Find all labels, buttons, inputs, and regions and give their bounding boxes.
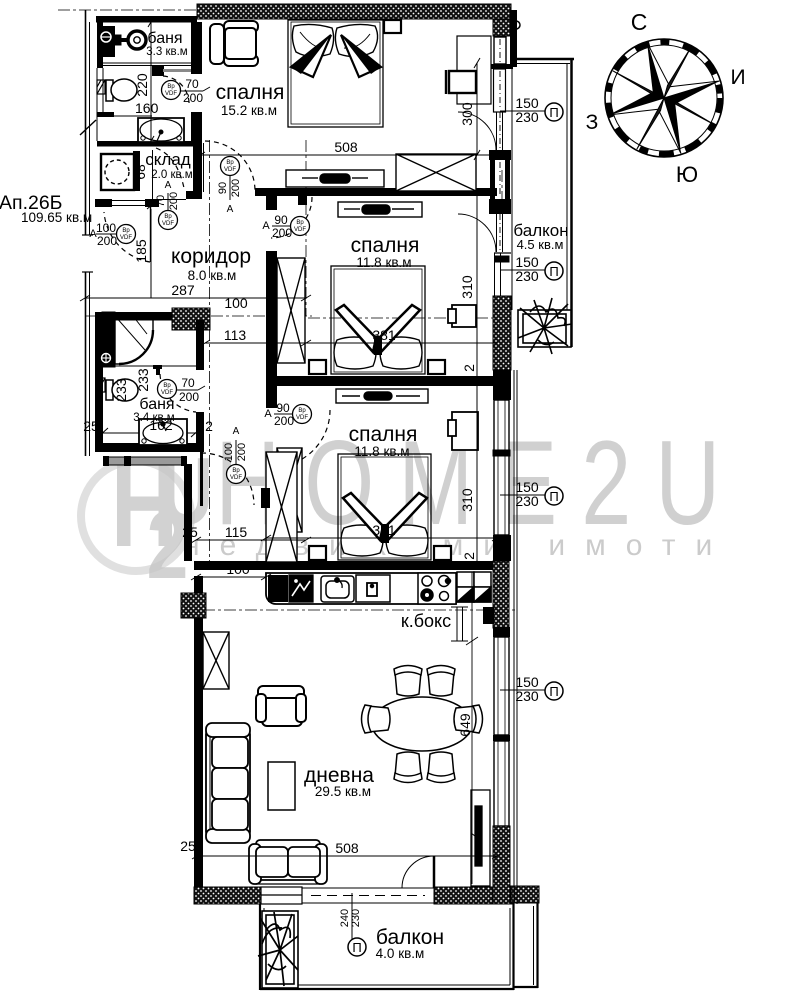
svg-text:200: 200 — [230, 179, 242, 197]
svg-text:162: 162 — [149, 417, 173, 433]
svg-text:4.5 кв.м: 4.5 кв.м — [517, 237, 564, 252]
svg-text:спалня: спалня — [349, 423, 418, 446]
svg-text:2.0 кв.м: 2.0 кв.м — [151, 169, 193, 181]
svg-text:2: 2 — [205, 418, 213, 434]
svg-text:233: 233 — [113, 378, 129, 402]
svg-text:25: 25 — [83, 418, 99, 434]
svg-text:200: 200 — [179, 390, 199, 404]
svg-text:90: 90 — [274, 213, 288, 227]
svg-text:230: 230 — [515, 268, 539, 284]
svg-text:200: 200 — [236, 443, 248, 461]
svg-text:200: 200 — [183, 91, 203, 105]
svg-text:VDF: VDF — [161, 390, 173, 396]
svg-text:А: А — [165, 180, 172, 191]
svg-text:185: 185 — [133, 239, 149, 263]
svg-text:Вр: Вр — [164, 214, 172, 220]
svg-text:А: А — [262, 220, 270, 232]
svg-text:100: 100 — [226, 561, 250, 577]
svg-text:200: 200 — [97, 234, 117, 248]
svg-text:381: 381 — [372, 522, 396, 538]
svg-text:VDF: VDF — [120, 235, 132, 241]
svg-text:3.3 кв.м: 3.3 кв.м — [146, 46, 188, 58]
svg-text:11.8 кв.м: 11.8 кв.м — [356, 255, 411, 270]
svg-text:А: А — [264, 408, 272, 420]
svg-text:100: 100 — [224, 295, 248, 311]
svg-text:220: 220 — [134, 73, 150, 97]
svg-text:Вр: Вр — [167, 84, 175, 90]
svg-text:200: 200 — [272, 226, 292, 240]
svg-text:4.0 кв.м: 4.0 кв.м — [376, 946, 425, 961]
svg-text:310: 310 — [459, 275, 475, 299]
svg-text:З: З — [586, 111, 599, 134]
svg-text:П: П — [549, 264, 558, 279]
svg-text:VDF: VDF — [224, 167, 236, 173]
svg-text:230: 230 — [350, 909, 362, 927]
svg-text:230: 230 — [515, 109, 539, 125]
svg-text:25: 25 — [180, 838, 196, 854]
svg-text:11.8 кв.м: 11.8 кв.м — [354, 444, 409, 459]
svg-text:508: 508 — [334, 139, 358, 155]
svg-text:25: 25 — [182, 524, 198, 540]
svg-text:склад: склад — [145, 150, 191, 169]
svg-text:С: С — [631, 9, 648, 35]
svg-text:VDF: VDF — [165, 91, 177, 97]
svg-text:8.0 кв.м: 8.0 кв.м — [188, 268, 237, 283]
svg-text:VDF: VDF — [162, 221, 174, 227]
svg-text:VDF: VDF — [230, 475, 242, 481]
svg-text:310: 310 — [459, 488, 475, 512]
svg-text:Ю: Ю — [676, 162, 698, 187]
svg-text:70: 70 — [181, 376, 195, 390]
svg-text:113: 113 — [224, 327, 247, 343]
svg-text:баня: баня — [147, 30, 182, 47]
svg-text:Вр: Вр — [232, 468, 240, 474]
svg-text:233: 233 — [135, 368, 151, 392]
svg-text:381: 381 — [372, 327, 396, 343]
svg-text:649: 649 — [457, 713, 473, 737]
svg-text:П: П — [549, 684, 558, 699]
svg-text:П: П — [549, 489, 558, 504]
svg-text:90: 90 — [276, 401, 290, 415]
svg-text:И: И — [730, 66, 745, 89]
svg-text:А: А — [227, 204, 234, 215]
svg-text:2: 2 — [461, 364, 477, 372]
svg-text:508: 508 — [335, 840, 359, 856]
svg-text:300: 300 — [459, 102, 475, 126]
svg-text:Вр: Вр — [226, 160, 234, 166]
svg-text:VDF: VDF — [296, 415, 308, 421]
svg-text:70: 70 — [155, 195, 167, 207]
svg-text:2: 2 — [461, 552, 477, 560]
svg-text:68: 68 — [132, 164, 148, 180]
svg-text:П: П — [352, 940, 361, 955]
svg-text:Вр: Вр — [163, 383, 171, 389]
svg-text:230: 230 — [515, 688, 539, 704]
svg-text:А: А — [233, 426, 240, 437]
svg-text:70: 70 — [185, 77, 199, 91]
svg-text:200: 200 — [274, 414, 294, 428]
svg-text:Вр: Вр — [298, 408, 306, 414]
svg-text:100: 100 — [96, 221, 116, 235]
svg-text:109.65 кв.м: 109.65 кв.м — [21, 210, 92, 225]
svg-text:200: 200 — [168, 192, 180, 210]
svg-text:15.2 кв.м: 15.2 кв.м — [221, 103, 277, 118]
svg-text:спалня: спалня — [351, 234, 420, 257]
svg-text:коридор: коридор — [171, 245, 251, 268]
svg-text:100: 100 — [223, 443, 235, 461]
svg-text:115: 115 — [225, 524, 248, 540]
svg-text:230: 230 — [515, 493, 539, 509]
svg-text:к.бокс: к.бокс — [401, 611, 451, 631]
svg-text:160: 160 — [135, 100, 159, 116]
svg-text:287: 287 — [171, 282, 195, 298]
svg-text:П: П — [549, 105, 558, 120]
svg-text:VDF: VDF — [294, 227, 306, 233]
svg-text:Вр: Вр — [296, 220, 304, 226]
svg-text:29.5 кв.м: 29.5 кв.м — [315, 784, 371, 799]
svg-text:Вр: Вр — [122, 228, 130, 234]
svg-text:90: 90 — [217, 182, 229, 194]
svg-text:спалня: спалня — [216, 81, 285, 104]
